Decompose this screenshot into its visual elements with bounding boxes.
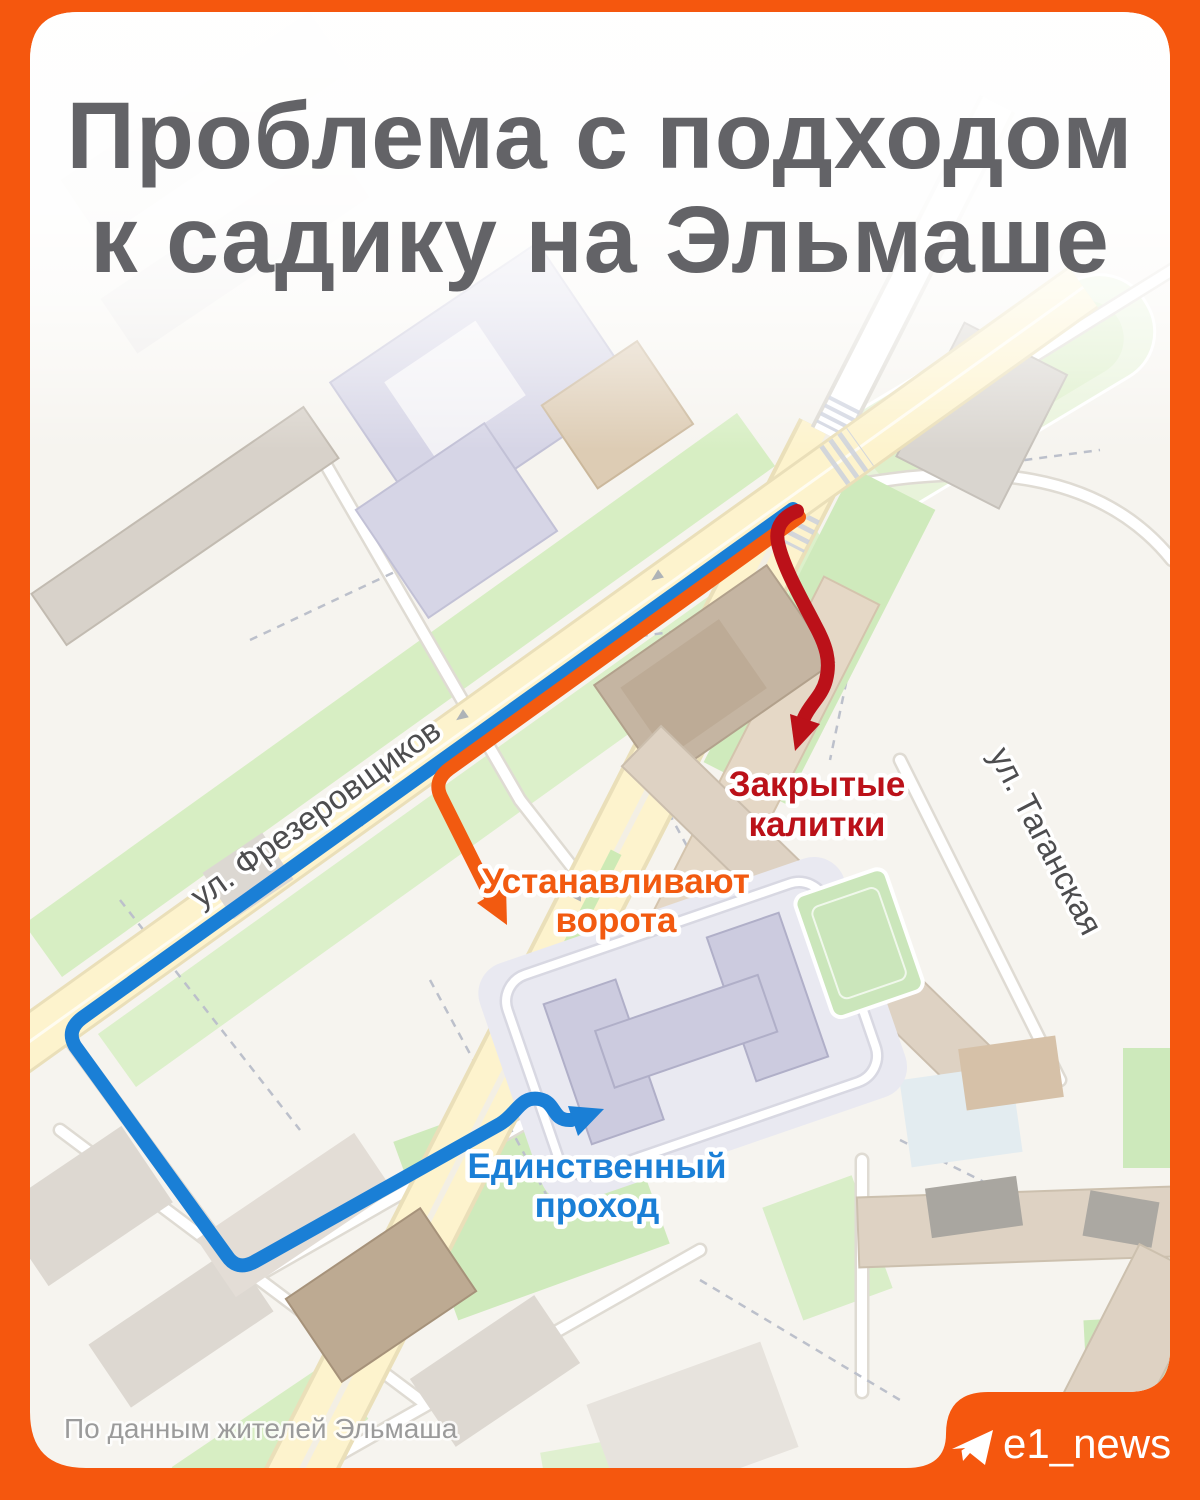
title-line2: к садику на Эльмаше [90,187,1110,293]
telegram-plane-icon [952,1430,993,1465]
title-line1: Проблема с подходом [67,83,1134,189]
map-infographic: ул. Фрезеровщиков ул. Таганская Закрытые… [0,0,1200,1500]
source-caption: По данным жителей Эльмаша [64,1413,458,1444]
closed-gates-line2: калитки [749,805,886,844]
page-title: Проблема с подходом к садику на Эльмаше [67,83,1134,293]
closed-gates-line1: Закрытые [729,765,906,804]
only-passage-line2: проход [535,1186,660,1225]
channel-name: e1_news [1003,1420,1171,1467]
infographic-frame: ул. Фрезеровщиков ул. Таганская Закрытые… [0,0,1200,1500]
channel-badge: e1_news [952,1420,1171,1467]
only-passage-line1: Единственный [467,1147,726,1186]
installing-gates-line1: Устанавливают [482,862,750,901]
installing-gates-line2: ворота [556,901,677,940]
annotation-closed-gates: Закрытые калитки [729,765,906,844]
